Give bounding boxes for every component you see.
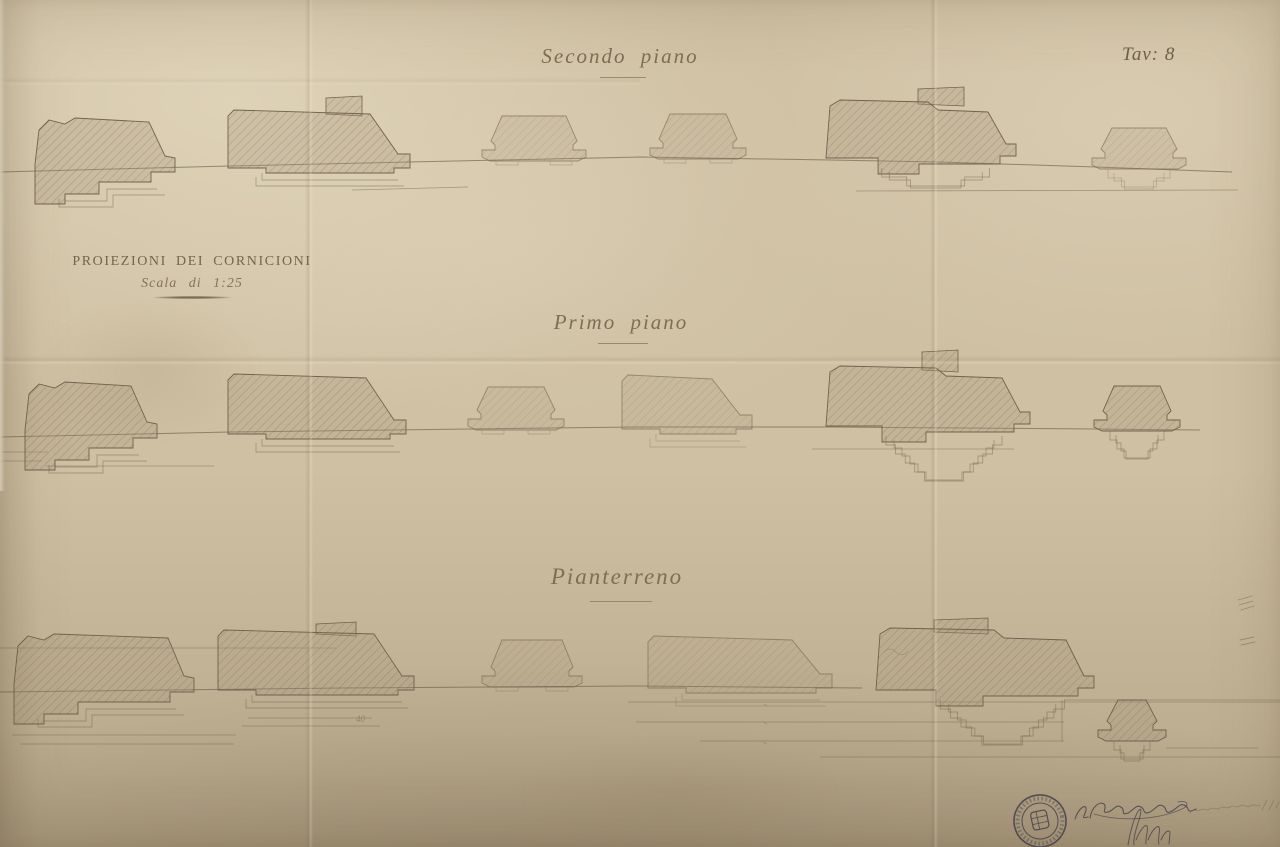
step-outline	[252, 695, 402, 702]
cornice-mass	[826, 366, 1030, 442]
cornice-cluster	[648, 636, 832, 706]
step-outline	[1110, 431, 1164, 458]
title-block: PROIEZIONI DEI CORNICIONI Scala di 1:25	[72, 254, 311, 299]
cornice-mass	[228, 374, 406, 439]
drawing-title: PROIEZIONI DEI CORNICIONI	[72, 254, 311, 270]
step-outline	[550, 161, 572, 165]
section-title-primo-piano: Primo piano	[554, 310, 689, 335]
datum-line	[0, 427, 1200, 437]
cornice-mass	[1094, 386, 1180, 431]
step-outline	[682, 693, 820, 700]
step-outline	[496, 687, 518, 691]
cornice-cluster	[35, 118, 175, 207]
datum-line	[0, 157, 1232, 172]
tiny-dimension-marks	[763, 704, 767, 744]
cornice-mass	[826, 100, 1016, 174]
cornice-cluster	[482, 640, 582, 691]
cornice-cluster	[218, 622, 414, 708]
section-title-secondo-piano: Secondo piano	[541, 44, 698, 69]
step-outline	[940, 700, 1064, 745]
title-underline	[600, 77, 646, 78]
step-outline	[262, 173, 398, 180]
cornice-cluster	[482, 116, 586, 165]
step-outline	[546, 687, 568, 691]
step-outline	[1120, 745, 1144, 761]
step-outline	[949, 704, 1056, 744]
cornice-cluster	[876, 618, 1094, 745]
cornice-cluster	[25, 382, 157, 473]
cornice-mass	[1098, 700, 1166, 741]
cornice-cluster	[228, 374, 406, 452]
step-outline	[482, 430, 504, 434]
band-secondo-piano	[0, 87, 1238, 207]
step-outline	[1108, 169, 1170, 187]
scale-label: Scala di 1:25	[72, 276, 311, 292]
step-outline	[710, 159, 732, 163]
circular-ink-stamp	[1009, 790, 1071, 847]
step-outline	[656, 434, 740, 441]
pencil-countersign	[1190, 800, 1279, 813]
step-outline	[1114, 741, 1150, 759]
cornice-mass	[876, 628, 1094, 706]
cornice-mass	[228, 110, 410, 173]
step-outline	[676, 697, 826, 706]
cornice-mass	[482, 116, 586, 161]
step-outline	[256, 177, 404, 186]
cornice-mass	[218, 630, 414, 695]
flourish-underline	[153, 296, 231, 299]
cornice-cluster	[1092, 128, 1186, 189]
title-underline	[590, 601, 652, 602]
step-outline	[886, 436, 1002, 481]
cornice-cluster	[1098, 700, 1166, 761]
cornice-mass	[648, 636, 832, 693]
cornice-mass	[622, 375, 752, 434]
cornice-mass	[25, 382, 157, 470]
step-outline	[496, 161, 518, 165]
step-outline	[246, 699, 408, 708]
cornice-cluster	[468, 387, 564, 434]
cornice-mass	[650, 114, 746, 159]
step-outline	[256, 443, 400, 452]
band-pianterreno	[0, 618, 1280, 761]
step-outline	[664, 159, 686, 163]
cornice-mass	[14, 634, 194, 724]
cornice-cluster	[14, 634, 194, 727]
step-outline	[650, 438, 746, 447]
cornice-cluster	[228, 96, 410, 186]
band-primo-piano	[0, 350, 1200, 481]
section-title-pianterreno: Pianterreno	[551, 564, 683, 590]
signature-ink-2	[1128, 809, 1170, 845]
cornice-cluster	[650, 114, 746, 163]
step-outline	[528, 430, 550, 434]
cornice-mass	[468, 387, 564, 430]
cornice-cluster	[1094, 386, 1180, 459]
margin-pencil-marks	[1238, 596, 1254, 610]
pencil-note: 40	[356, 714, 365, 724]
step-outline	[262, 439, 394, 446]
cornice-mass	[482, 640, 582, 687]
cornice-cluster	[826, 87, 1016, 188]
plate-number: Tav: 8	[1122, 44, 1175, 66]
cornice-projection-drawing	[0, 0, 1280, 847]
title-underline	[598, 343, 648, 344]
step-outline	[894, 440, 994, 480]
paper-edge	[0, 0, 5, 491]
drawing-sheet: Secondo piano Tav: 8 PROIEZIONI DEI CORN…	[0, 0, 1280, 847]
step-outline	[1116, 435, 1158, 459]
cornice-cluster	[622, 375, 752, 447]
margin-pencil-marks	[1240, 637, 1255, 645]
cornice-mass	[1092, 128, 1186, 169]
profile-line	[856, 190, 1238, 191]
profile-line	[352, 187, 468, 190]
cornice-cluster	[826, 350, 1030, 481]
cornice-mass	[35, 118, 175, 204]
